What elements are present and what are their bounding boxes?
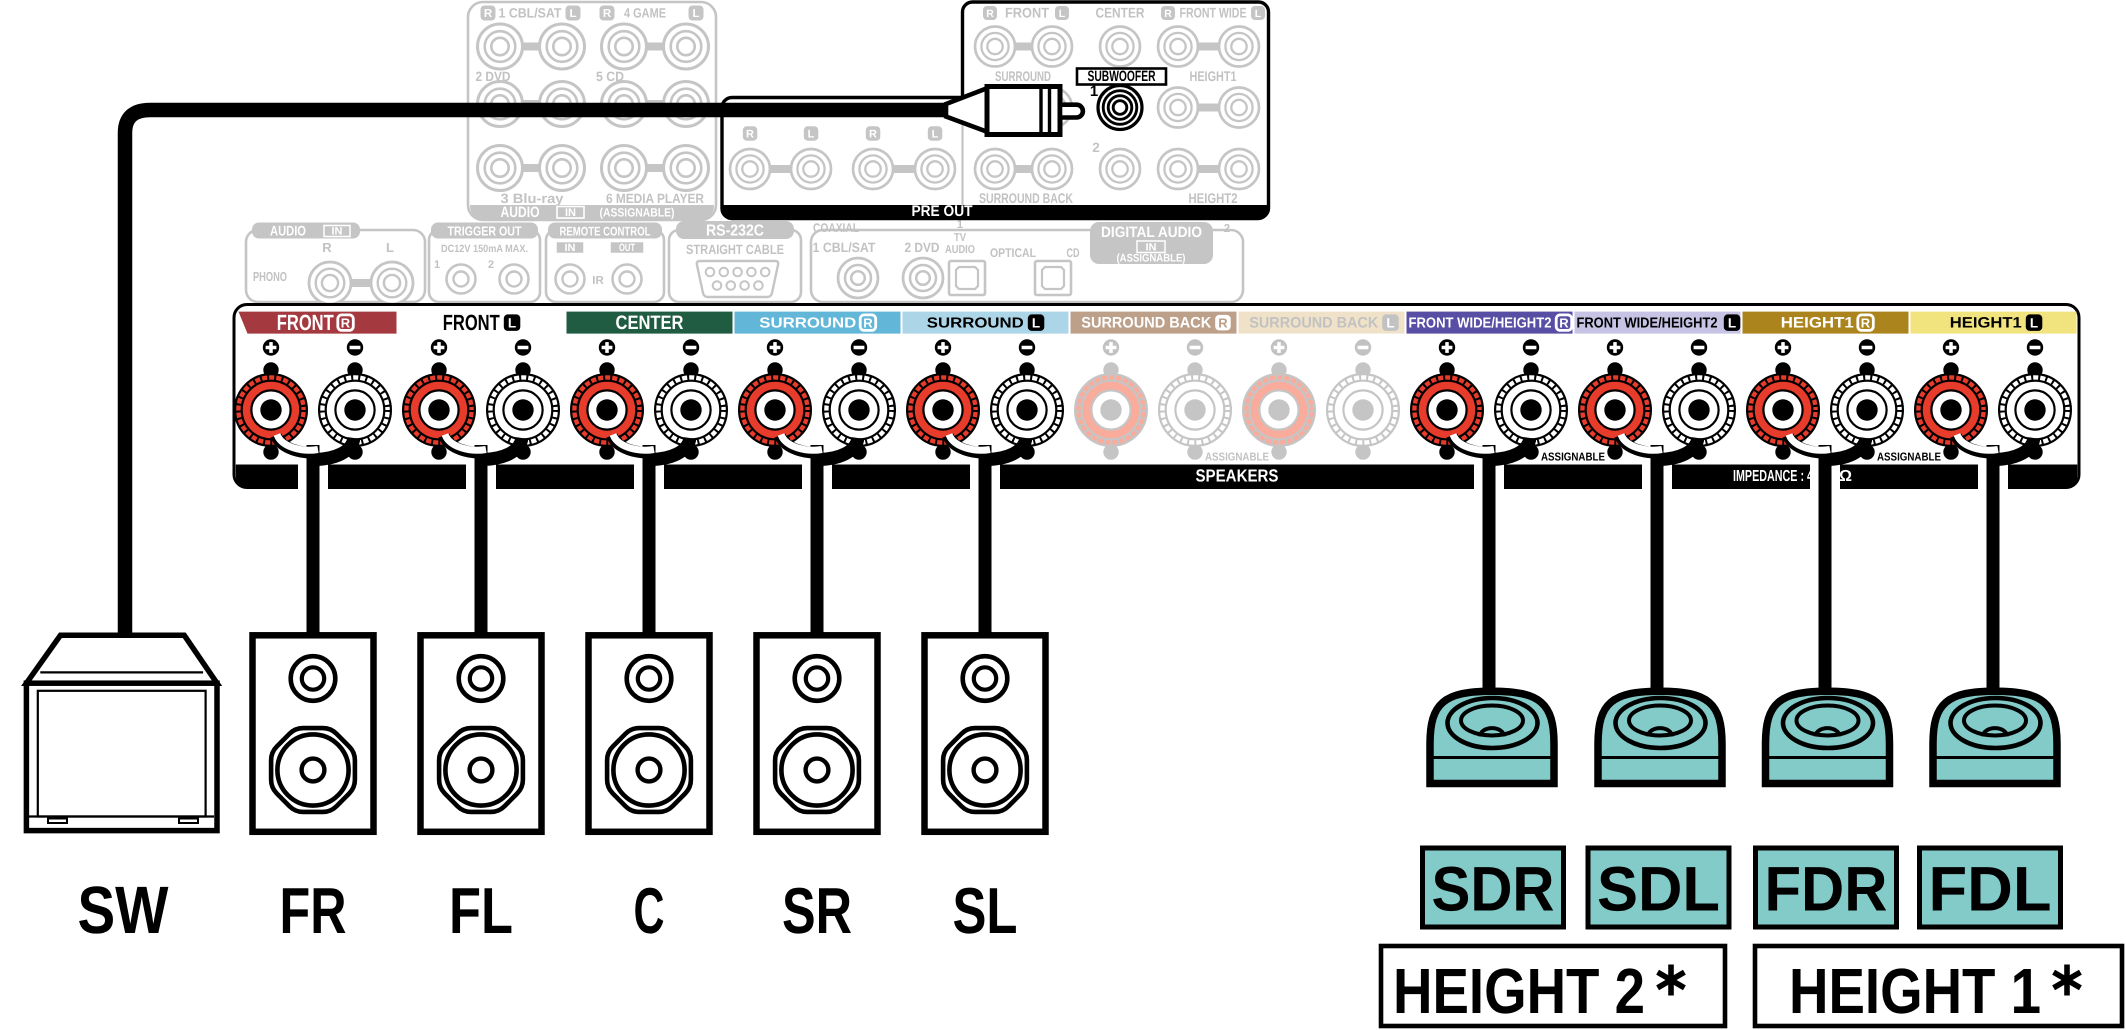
svg-text:SURROUND: SURROUND xyxy=(995,68,1051,84)
svg-text:(ASSIGNABLE): (ASSIGNABLE) xyxy=(1117,253,1186,265)
svg-text:R: R xyxy=(986,8,994,20)
svg-text:FR: FR xyxy=(280,874,347,947)
svg-text:CD: CD xyxy=(1067,246,1080,260)
svg-text:FDR: FDR xyxy=(1765,855,1888,925)
svg-text:SURROUND BACK: SURROUND BACK xyxy=(1081,315,1211,332)
svg-text:R: R xyxy=(1559,315,1569,330)
svg-text:FRONT WIDE: FRONT WIDE xyxy=(1180,5,1247,21)
svg-text:C: C xyxy=(634,874,665,947)
svg-text:SW: SW xyxy=(78,873,170,948)
svg-text:CENTER: CENTER xyxy=(616,312,684,334)
svg-text:ASSIGNABLE: ASSIGNABLE xyxy=(1205,452,1269,464)
svg-text:COAXIAL: COAXIAL xyxy=(813,221,859,235)
svg-text:HEIGHT1: HEIGHT1 xyxy=(1950,315,2022,332)
svg-text:IR: IR xyxy=(592,275,604,287)
svg-text:AUDIO: AUDIO xyxy=(270,223,306,239)
svg-text:(ASSIGNABLE): (ASSIGNABLE) xyxy=(600,206,675,220)
svg-text:SDL: SDL xyxy=(1597,855,1720,925)
svg-text:L: L xyxy=(808,128,815,140)
svg-text:1: 1 xyxy=(957,219,964,231)
svg-text:2: 2 xyxy=(1224,223,1230,235)
svg-text:FRONT: FRONT xyxy=(1005,5,1049,21)
svg-text:L: L xyxy=(569,8,576,20)
svg-text:L: L xyxy=(1255,8,1262,20)
svg-text:IN: IN xyxy=(332,226,343,238)
svg-text:4 GAME: 4 GAME xyxy=(624,6,666,21)
svg-text:FRONT WIDE/HEIGHT2: FRONT WIDE/HEIGHT2 xyxy=(1409,315,1552,331)
svg-text:SURROUND BACK: SURROUND BACK xyxy=(979,190,1073,206)
svg-text:SR: SR xyxy=(782,874,852,947)
svg-text:PHONO: PHONO xyxy=(253,269,287,284)
svg-text:FL: FL xyxy=(449,874,513,947)
svg-text:1 CBL/SAT: 1 CBL/SAT xyxy=(499,6,563,21)
svg-text:R: R xyxy=(746,128,754,140)
svg-text:1 CBL/SAT: 1 CBL/SAT xyxy=(813,240,877,255)
svg-text:FRONT: FRONT xyxy=(277,310,334,335)
svg-text:1: 1 xyxy=(434,259,440,271)
svg-text:ASSIGNABLE: ASSIGNABLE xyxy=(1877,452,1941,464)
svg-text:L: L xyxy=(1032,315,1040,330)
svg-text:L: L xyxy=(508,315,516,330)
svg-text:ASSIGNABLE: ASSIGNABLE xyxy=(1541,452,1605,464)
svg-text:DIGITAL AUDIO: DIGITAL AUDIO xyxy=(1101,224,1202,241)
svg-text:2: 2 xyxy=(488,259,494,271)
svg-text:TRIGGER OUT: TRIGGER OUT xyxy=(448,224,522,239)
svg-text:HEIGHT2: HEIGHT2 xyxy=(1189,190,1238,206)
svg-text:SPEAKERS: SPEAKERS xyxy=(1196,466,1279,486)
svg-text:HEIGHT1: HEIGHT1 xyxy=(1781,315,1854,332)
svg-text:R: R xyxy=(1164,8,1172,20)
svg-text:L: L xyxy=(1059,8,1066,20)
svg-text:RS-232C: RS-232C xyxy=(706,223,764,240)
svg-text:PRE OUT: PRE OUT xyxy=(912,203,973,220)
svg-text:2 DVD: 2 DVD xyxy=(905,240,940,255)
svg-text:AUDIO: AUDIO xyxy=(945,244,975,256)
svg-text:R: R xyxy=(603,8,612,20)
svg-text:DC12V 150mA MAX.: DC12V 150mA MAX. xyxy=(441,243,528,255)
svg-text:HEIGHT1: HEIGHT1 xyxy=(1190,68,1237,84)
svg-text:FRONT: FRONT xyxy=(443,310,500,335)
svg-text:SL: SL xyxy=(953,874,1018,947)
svg-text:6 MEDIA PLAYER: 6 MEDIA PLAYER xyxy=(606,191,704,206)
svg-text:R: R xyxy=(341,315,351,330)
svg-text:R: R xyxy=(1218,315,1228,330)
svg-text:R: R xyxy=(322,240,332,255)
svg-text:OUT: OUT xyxy=(619,242,635,254)
svg-text:L: L xyxy=(692,8,699,20)
svg-text:STRAIGHT CABLE: STRAIGHT CABLE xyxy=(686,242,784,257)
svg-text:L: L xyxy=(2030,315,2038,330)
svg-text:R: R xyxy=(869,128,877,140)
svg-text:IN: IN xyxy=(565,242,576,254)
svg-text:1: 1 xyxy=(1090,83,1098,100)
svg-text:Ω: Ω xyxy=(1839,468,1852,485)
svg-text:R: R xyxy=(484,8,493,20)
svg-text:2: 2 xyxy=(1092,140,1100,155)
svg-text:FRONT WIDE/HEIGHT2: FRONT WIDE/HEIGHT2 xyxy=(1577,315,1718,331)
svg-text:REMOTE CONTROL: REMOTE CONTROL xyxy=(560,225,651,239)
svg-text:SURROUND: SURROUND xyxy=(927,315,1024,331)
svg-text:CENTER: CENTER xyxy=(1096,5,1145,21)
svg-text:HEIGHT 1: HEIGHT 1 xyxy=(1789,955,2041,1027)
svg-text:FDL: FDL xyxy=(1929,855,2052,925)
svg-text:IMPEDANCE : 4: IMPEDANCE : 4 xyxy=(1733,468,1813,485)
svg-text:L: L xyxy=(1728,315,1736,330)
svg-text:HEIGHT 2: HEIGHT 2 xyxy=(1393,955,1645,1027)
svg-text:AUDIO: AUDIO xyxy=(501,204,540,221)
svg-text:SDR: SDR xyxy=(1432,855,1555,925)
svg-text:SURROUND BACK: SURROUND BACK xyxy=(1249,315,1378,332)
svg-text:L: L xyxy=(386,240,394,255)
svg-text:TV: TV xyxy=(954,232,966,244)
svg-text:L: L xyxy=(1386,315,1394,330)
svg-text:OPTICAL: OPTICAL xyxy=(990,246,1036,260)
svg-text:SURROUND: SURROUND xyxy=(759,315,856,331)
svg-text:L: L xyxy=(932,128,939,140)
svg-text:IN: IN xyxy=(565,207,576,219)
svg-text:R: R xyxy=(863,315,873,330)
svg-text:R: R xyxy=(1861,315,1871,330)
